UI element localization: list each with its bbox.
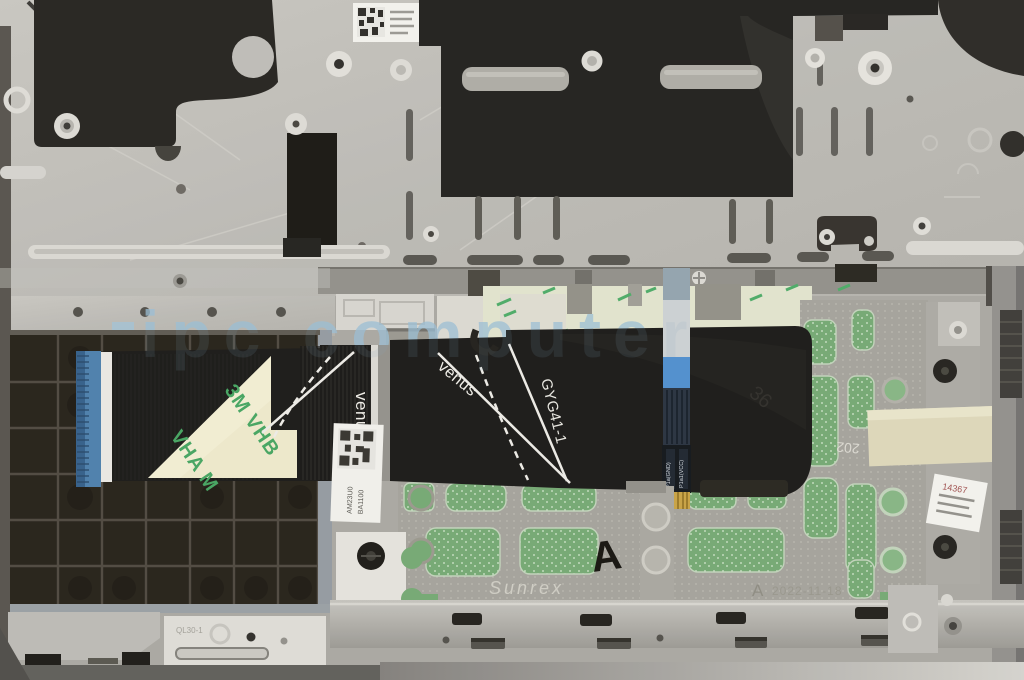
- svg-text:ipc computer: ipc computer: [141, 297, 699, 371]
